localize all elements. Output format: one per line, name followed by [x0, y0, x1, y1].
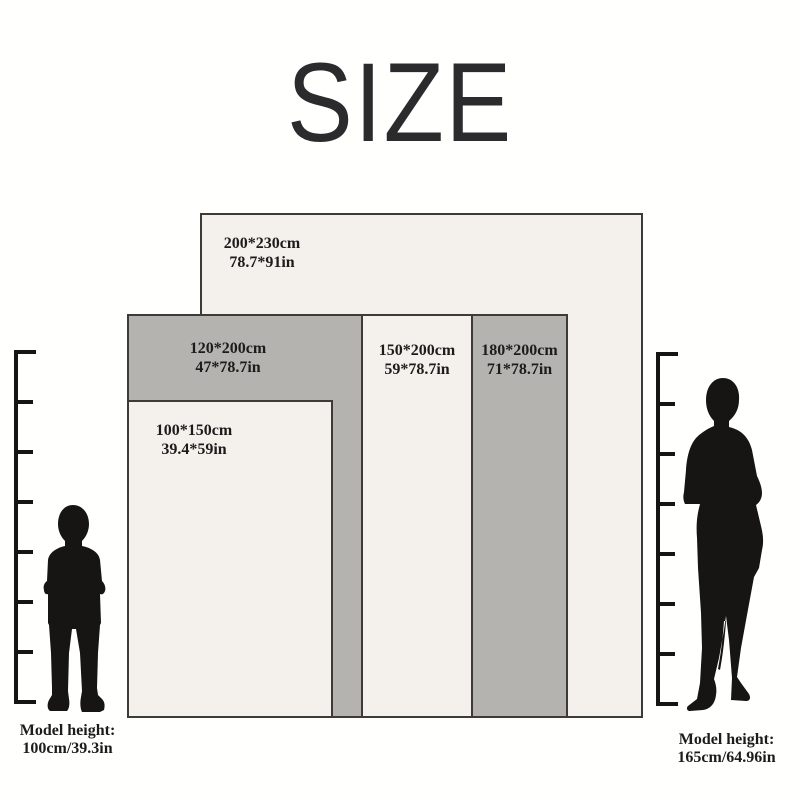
ruler-tick	[18, 500, 33, 504]
size-label-150x200: 150*200cm 59*78.7in	[363, 342, 471, 379]
size-cm: 120*200cm	[143, 340, 313, 359]
size-label-120x200: 120*200cm 47*78.7in	[143, 340, 313, 377]
size-rect-180x200: 180*200cm 71*78.7in	[471, 314, 568, 718]
height-ruler-left-icon	[14, 350, 36, 704]
model-height-right: Model height: 165cm/64.96in	[653, 731, 800, 767]
size-cm: 100*150cm	[144, 422, 244, 441]
ruler-tick	[660, 602, 675, 606]
ruler-tick	[18, 650, 33, 654]
model-height-label: Model height:	[7, 722, 128, 740]
ruler-cap	[14, 350, 36, 354]
size-rect-150x200: 150*200cm 59*78.7in	[361, 314, 473, 718]
model-height-value: 100cm/39.3in	[7, 740, 128, 758]
size-label-200x230: 200*230cm 78.7*91in	[212, 235, 312, 272]
ruler-tick	[18, 450, 33, 454]
ruler-tick	[660, 402, 675, 406]
model-height-label: Model height:	[653, 731, 800, 749]
model-height-value: 165cm/64.96in	[653, 749, 800, 767]
size-inch: 47*78.7in	[143, 359, 313, 378]
ruler-cap	[656, 702, 678, 706]
size-inch: 59*78.7in	[363, 361, 471, 380]
ruler-tick	[660, 652, 675, 656]
ruler-tick	[18, 550, 33, 554]
ruler-cap	[14, 700, 36, 704]
ruler-tick	[660, 502, 675, 506]
size-inch: 39.4*59in	[144, 441, 244, 460]
woman-silhouette-icon	[683, 378, 765, 713]
child-silhouette-icon	[42, 503, 108, 714]
size-rect-100x150: 100*150cm 39.4*59in	[127, 400, 333, 718]
height-ruler-right-icon	[656, 352, 678, 706]
size-inch: 78.7*91in	[212, 254, 312, 273]
ruler-tick	[660, 552, 675, 556]
size-label-100x150: 100*150cm 39.4*59in	[144, 422, 244, 459]
size-inch: 71*78.7in	[473, 361, 566, 380]
model-height-left: Model height: 100cm/39.3in	[7, 722, 128, 758]
ruler-cap	[656, 352, 678, 356]
ruler-tick	[660, 452, 675, 456]
size-label-180x200: 180*200cm 71*78.7in	[473, 342, 566, 379]
size-cm: 150*200cm	[363, 342, 471, 361]
size-cm: 180*200cm	[473, 342, 566, 361]
size-chart: SIZE 200*230cm 78.7*91in 150*200cm 59*78…	[0, 0, 800, 800]
ruler-tick	[18, 400, 33, 404]
ruler-tick	[18, 600, 33, 604]
page-title: SIZE	[48, 44, 752, 162]
size-cm: 200*230cm	[212, 235, 312, 254]
